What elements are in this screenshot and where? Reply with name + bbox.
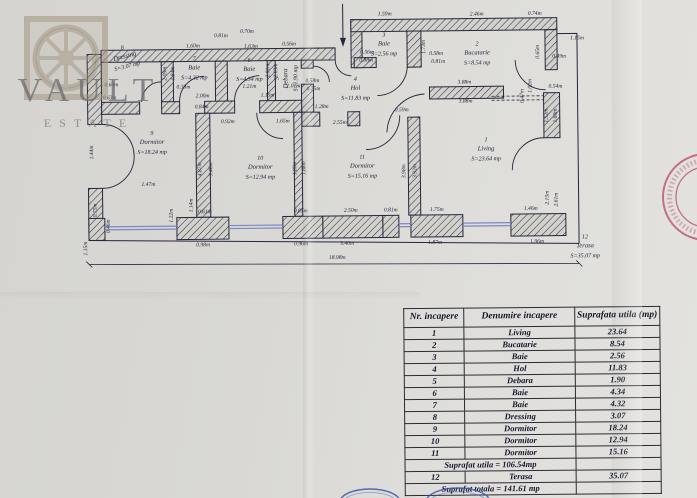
red-round-stamp [663, 154, 697, 240]
blue-oval-stamp-left [340, 489, 400, 498]
stamps-overlay [0, 0, 697, 498]
scanned-floor-plan-document: 1.60m0.81m0.70m1.63m0.56m1.59m2.46m0.74m… [0, 0, 697, 498]
blue-oval-stamp-right [426, 488, 490, 498]
